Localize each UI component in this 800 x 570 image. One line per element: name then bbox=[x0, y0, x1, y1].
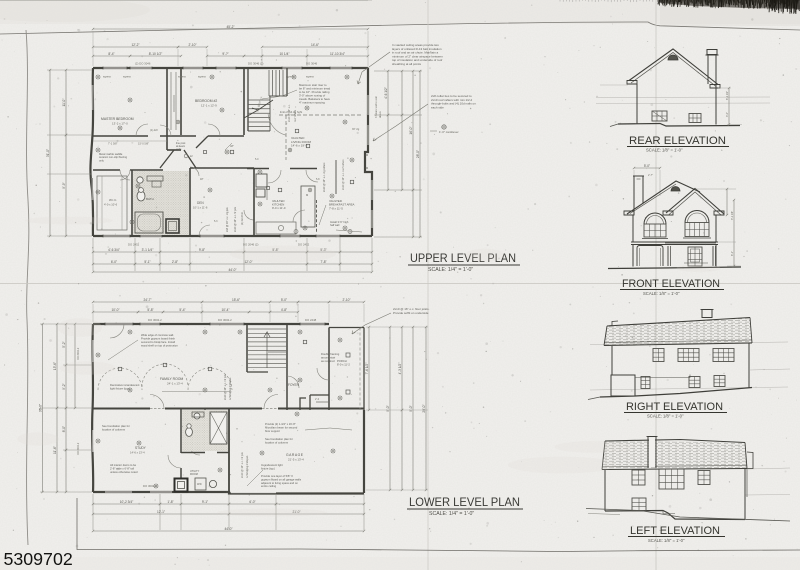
svg-text:4'-6 3/4": 4'-6 3/4" bbox=[108, 248, 120, 252]
svg-text:floor support: floor support bbox=[265, 429, 280, 433]
svg-text:21'-5 x 13'-4: 21'-5 x 13'-4 bbox=[288, 458, 304, 462]
svg-text:2'-10": 2'-10" bbox=[342, 298, 350, 302]
svg-text:RIGHT ELEVATION: RIGHT ELEVATION bbox=[626, 401, 723, 413]
svg-text:DO 3002-2: DO 3002-2 bbox=[77, 347, 80, 360]
svg-text:egress: egress bbox=[198, 75, 206, 79]
svg-text:12'-2": 12'-2" bbox=[131, 43, 139, 47]
svg-text:STUDY: STUDY bbox=[135, 446, 147, 450]
svg-text:31'-0": 31'-0" bbox=[46, 149, 50, 157]
svg-text:adjacent to living space and o: adjacent to living space and on bbox=[261, 481, 298, 485]
svg-text:2x10 @ 16" o.c. flr jsts: 2x10 @ 16" o.c. flr jsts bbox=[234, 206, 237, 232]
svg-text:location of columns: location of columns bbox=[265, 440, 289, 444]
svg-text:egress: egress bbox=[123, 75, 131, 79]
svg-text:7'-1 5/8": 7'-1 5/8" bbox=[108, 142, 118, 146]
svg-text:FOYER: FOYER bbox=[288, 383, 300, 387]
svg-text:(2)-2x8: (2)-2x8 bbox=[150, 129, 158, 132]
svg-text:13'-2 x 17'-0: 13'-2 x 17'-0 bbox=[112, 122, 128, 126]
svg-text:11'-6": 11'-6" bbox=[53, 446, 57, 454]
svg-text:11'-10 3/4": 11'-10 3/4" bbox=[330, 52, 345, 56]
svg-text:above: above bbox=[379, 111, 382, 118]
svg-text:6'-0": 6'-0" bbox=[249, 500, 255, 504]
svg-text:9'-2": 9'-2" bbox=[62, 383, 66, 389]
svg-text:LEFT ELEVATION: LEFT ELEVATION bbox=[630, 525, 720, 537]
svg-text:12'-1": 12'-1" bbox=[157, 510, 165, 514]
svg-text:DO 3002-2: DO 3002-2 bbox=[77, 442, 80, 455]
svg-text:SCALE: 1/8" = 1'-0": SCALE: 1/8" = 1'-0" bbox=[646, 148, 683, 153]
svg-text:FRONT ELEVATION: FRONT ELEVATION bbox=[622, 278, 720, 290]
svg-text:14'-6 x 13'-4: 14'-6 x 13'-4 bbox=[130, 451, 145, 455]
svg-text:9'-0": 9'-0" bbox=[409, 405, 413, 411]
svg-text:9'-8": 9'-8" bbox=[199, 248, 205, 252]
svg-text:only: only bbox=[99, 158, 104, 162]
svg-text:Microllam beam for second: Microllam beam for second bbox=[265, 425, 298, 429]
svg-text:1'-0" cantilever: 1'-0" cantilever bbox=[439, 130, 459, 134]
svg-text:sheathing at all points: sheathing at all points bbox=[392, 62, 422, 66]
svg-text:10'-4": 10'-4" bbox=[221, 308, 229, 312]
svg-text:location of columns: location of columns bbox=[102, 427, 126, 431]
svg-text:w/ bridging midspan: w/ bridging midspan bbox=[246, 455, 249, 478]
svg-text:9'-1 1/8": 9'-1 1/8" bbox=[731, 211, 734, 220]
svg-text:(2) 2x10 hdr: (2) 2x10 hdr bbox=[241, 212, 244, 225]
svg-text:36" clg: 36" clg bbox=[352, 128, 360, 131]
svg-text:5'-0": 5'-0" bbox=[281, 298, 287, 302]
svg-text:5'-8": 5'-8" bbox=[147, 308, 153, 312]
svg-text:8'-1": 8'-1" bbox=[731, 251, 734, 256]
svg-text:2x10 @ 16" o.c. Flr jsts: 2x10 @ 16" o.c. Flr jsts bbox=[224, 373, 227, 400]
svg-text:7'-6 1/2": 7'-6 1/2" bbox=[365, 363, 369, 375]
svg-text:unless otherwise noted: unless otherwise noted bbox=[110, 470, 138, 474]
svg-text:egress: egress bbox=[306, 75, 314, 79]
svg-text:6'-0": 6'-0" bbox=[111, 260, 117, 264]
svg-text:5'-2": 5'-2" bbox=[62, 341, 66, 347]
svg-text:around stair: around stair bbox=[321, 356, 335, 360]
svg-text:FAMILY ROOM: FAMILY ROOM bbox=[160, 377, 183, 381]
svg-text:10'-0": 10'-0" bbox=[111, 308, 119, 312]
svg-text:light fixture (typ.): light fixture (typ.) bbox=[110, 387, 130, 391]
svg-text:limit of full clg hght: limit of full clg hght bbox=[280, 110, 302, 114]
svg-text:5309702: 5309702 bbox=[4, 549, 73, 569]
svg-text:10'-1 x 11'-6: 10'-1 x 11'-6 bbox=[193, 206, 208, 210]
svg-text:5'-0": 5'-0" bbox=[644, 164, 650, 168]
svg-text:2x8 @ 16" o.c. clg jsts: 2x8 @ 16" o.c. clg jsts bbox=[226, 207, 229, 232]
svg-text:wood shelf on top of protrusio: wood shelf on top of protrusion bbox=[141, 344, 178, 348]
svg-text:9'-1": 9'-1" bbox=[202, 500, 208, 504]
svg-text:egress: egress bbox=[103, 75, 111, 79]
svg-text:4" maximum spacing: 4" maximum spacing bbox=[299, 101, 325, 105]
svg-text:1'-8": 1'-8" bbox=[167, 500, 173, 504]
svg-text:secured to block face. Install: secured to block face. Install bbox=[141, 340, 175, 344]
svg-text:28'-0": 28'-0" bbox=[422, 404, 426, 412]
svg-text:Decorative incandescent: Decorative incandescent bbox=[110, 383, 140, 387]
svg-text:4'-3 1/2": 4'-3 1/2" bbox=[398, 363, 402, 375]
svg-text:DO 2452: DO 2452 bbox=[128, 243, 140, 247]
svg-text:(2) DO 3046: (2) DO 3046 bbox=[135, 62, 151, 66]
svg-text:9'-0": 9'-0" bbox=[386, 405, 390, 411]
svg-text:BATH: BATH bbox=[146, 197, 154, 201]
svg-text:See foundation plan for: See foundation plan for bbox=[102, 424, 130, 428]
svg-text:SCALE: 1/8" = 1'-0": SCALE: 1/8" = 1'-0" bbox=[648, 538, 685, 543]
svg-text:DO 3002-2: DO 3002-2 bbox=[148, 318, 162, 322]
svg-text:SCALE: 1/8" = 1'-0": SCALE: 1/8" = 1'-0" bbox=[643, 291, 680, 296]
svg-text:Provide (2) 1-3/4" x 16'-8": Provide (2) 1-3/4" x 16'-8" bbox=[265, 422, 296, 426]
svg-text:DO 3046 (2): DO 3046 (2) bbox=[248, 62, 263, 66]
svg-text:15'-6": 15'-6" bbox=[53, 362, 57, 370]
svg-text:3'-0": 3'-0" bbox=[726, 112, 729, 117]
svg-text:2'-8": 2'-8" bbox=[172, 260, 178, 264]
svg-text:fixture (typ.): fixture (typ.) bbox=[261, 466, 275, 470]
svg-text:45'-2": 45'-2" bbox=[226, 25, 234, 29]
svg-text:8'-1 1/2": 8'-1 1/2" bbox=[726, 91, 729, 100]
svg-text:half wall: half wall bbox=[330, 223, 340, 227]
svg-text:egress: egress bbox=[286, 75, 294, 79]
svg-text:24'-7": 24'-7" bbox=[143, 298, 151, 302]
svg-text:2x10 @ 16" o.c. roof rafters: 2x10 @ 16" o.c. roof rafters bbox=[342, 159, 345, 190]
svg-text:w/ bridging midspan: w/ bridging midspan bbox=[229, 377, 232, 400]
svg-text:28'-0": 28'-0" bbox=[416, 150, 420, 158]
svg-text:4'-0 x 10'-6: 4'-0 x 10'-6 bbox=[104, 203, 118, 207]
svg-text:2'-0: 2'-0 bbox=[315, 398, 320, 401]
svg-text:gypsum board on all garage wal: gypsum board on all garage walls bbox=[261, 477, 302, 481]
svg-text:REAR ELEVATION: REAR ELEVATION bbox=[629, 135, 726, 147]
svg-text:ROOM: ROOM bbox=[190, 473, 198, 476]
svg-text:W.I.C.: W.I.C. bbox=[109, 198, 117, 202]
svg-text:Provide soffit on underside: Provide soffit on underside bbox=[393, 311, 429, 315]
svg-text:12'-1 x 12'-9: 12'-1 x 12'-9 bbox=[201, 104, 217, 108]
svg-text:W/D: W/D bbox=[197, 483, 202, 486]
svg-text:DO 2046 (2): DO 2046 (2) bbox=[243, 243, 258, 247]
svg-text:14'-6": 14'-6" bbox=[311, 43, 319, 47]
svg-text:8'-0 x 11'-2: 8'-0 x 11'-2 bbox=[337, 362, 350, 366]
svg-text:15'-0 5/8": 15'-0 5/8" bbox=[138, 142, 149, 146]
svg-text:44'-0": 44'-0" bbox=[224, 527, 232, 531]
svg-text:8'-4": 8'-4" bbox=[108, 52, 114, 56]
svg-text:3'-1 1/4": 3'-1 1/4" bbox=[142, 248, 154, 252]
svg-text:5'-1": 5'-1" bbox=[144, 260, 150, 264]
svg-text:9'-?": 9'-?" bbox=[222, 52, 228, 56]
svg-text:8'-0": 8'-0" bbox=[62, 426, 66, 432]
svg-text:All interior doors to be: All interior doors to be bbox=[110, 463, 137, 467]
svg-text:4'-8": 4'-8" bbox=[281, 308, 287, 312]
svg-text:48": 48" bbox=[200, 178, 204, 181]
svg-text:GARAGE: GARAGE bbox=[286, 453, 304, 457]
svg-text:Provide one layer of 5/8" X: Provide one layer of 5/8" X bbox=[261, 474, 293, 478]
svg-text:each side: each side bbox=[431, 105, 444, 109]
svg-text:2x10 @ 16" o.c. Flr jsts: 2x10 @ 16" o.c. Flr jsts bbox=[241, 451, 244, 478]
svg-text:10 1/4": 10 1/4" bbox=[280, 52, 290, 56]
svg-text:M: M bbox=[306, 193, 308, 197]
svg-text:4'-6 1/2": 4'-6 1/2" bbox=[384, 87, 388, 99]
svg-text:15'-6": 15'-6" bbox=[232, 298, 240, 302]
svg-text:3 fixture wall to wall: 3 fixture wall to wall bbox=[375, 96, 378, 118]
svg-text:SCALE: 1/8" = 1'-0": SCALE: 1/8" = 1'-0" bbox=[647, 414, 684, 419]
svg-text:DO 3002-2: DO 3002-2 bbox=[218, 318, 232, 322]
svg-text:BEDROOM #2: BEDROOM #2 bbox=[195, 99, 217, 103]
svg-text:See foundation plan for: See foundation plan for bbox=[265, 437, 293, 441]
svg-text:2x10 @ 16" o.c. clg rafters: 2x10 @ 16" o.c. clg rafters bbox=[323, 162, 326, 192]
svg-text:SCALE: 1/4" = 1'-0": SCALE: 1/4" = 1'-0" bbox=[429, 511, 474, 517]
svg-text:7'-8": 7'-8" bbox=[320, 260, 326, 264]
svg-text:as required: as required bbox=[321, 359, 335, 363]
svg-text:24'-1 x 13'-4: 24'-1 x 13'-4 bbox=[167, 382, 183, 386]
svg-text:9'-0 x 11'-0: 9'-0 x 11'-0 bbox=[272, 206, 286, 210]
svg-text:2'-8" wide x 6'-8" tall: 2'-8" wide x 6'-8" tall bbox=[110, 466, 134, 470]
svg-text:DO 2448: DO 2448 bbox=[305, 318, 317, 322]
svg-text:7'-8 x 11'-5: 7'-8 x 11'-5 bbox=[329, 206, 343, 210]
svg-text:Provide gypsum board finish: Provide gypsum board finish bbox=[141, 337, 175, 341]
svg-text:DO 3046: DO 3046 bbox=[306, 62, 318, 66]
svg-text:9'-9": 9'-9" bbox=[62, 182, 66, 188]
svg-text:10'-2 3/4": 10'-2 3/4" bbox=[120, 500, 133, 504]
svg-text:Double framing: Double framing bbox=[321, 352, 340, 356]
svg-text:ends: ends bbox=[176, 148, 182, 151]
svg-text:5'-4": 5'-4" bbox=[179, 308, 185, 312]
svg-text:11'-0": 11'-0" bbox=[62, 99, 66, 107]
svg-text:roof rafters: roof rafters bbox=[294, 109, 297, 122]
svg-text:DO 2452: DO 2452 bbox=[298, 243, 310, 247]
svg-text:egress: egress bbox=[178, 75, 186, 79]
svg-text:16'-0": 16'-0" bbox=[409, 126, 413, 134]
svg-text:2x10 @ 16" o.c.: 2x10 @ 16" o.c. bbox=[288, 104, 291, 122]
svg-text:entire ceiling: entire ceiling bbox=[261, 484, 277, 488]
svg-text:2'-10": 2'-10" bbox=[188, 43, 196, 47]
svg-text:DEN: DEN bbox=[197, 201, 204, 205]
svg-text:LOWER LEVEL PLAN: LOWER LEVEL PLAN bbox=[409, 495, 520, 509]
svg-text:2'-?": 2'-?" bbox=[648, 174, 653, 177]
svg-text:14'-6 x 19'-5: 14'-6 x 19'-5 bbox=[291, 144, 308, 148]
svg-text:Wide edge of concrete wall.: Wide edge of concrete wall. bbox=[141, 333, 174, 337]
svg-text:SCALE: 1/4" = 1'-0": SCALE: 1/4" = 1'-0" bbox=[428, 267, 473, 273]
svg-text:8'-10 1/2": 8'-10 1/2" bbox=[149, 52, 162, 56]
svg-text:PORCH: PORCH bbox=[337, 359, 347, 363]
svg-text:44'-0": 44'-0" bbox=[228, 268, 236, 272]
